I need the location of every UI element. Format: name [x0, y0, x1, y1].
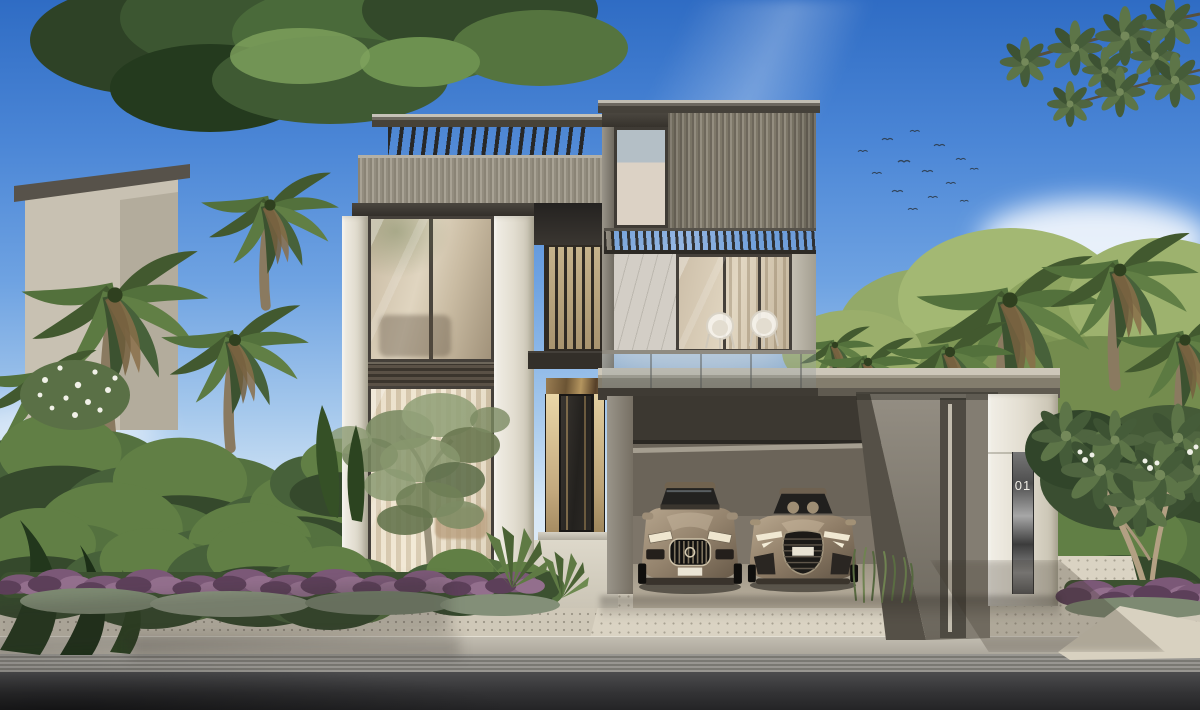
purple-flower-hedge-left [0, 569, 560, 617]
white-flower-shrub [20, 360, 130, 430]
scene-luxury-villa-render: 01 [0, 0, 1200, 710]
frangipani-garden-right [1025, 402, 1200, 661]
grass-tufts [853, 548, 912, 602]
foreground-garden [0, 0, 1200, 710]
